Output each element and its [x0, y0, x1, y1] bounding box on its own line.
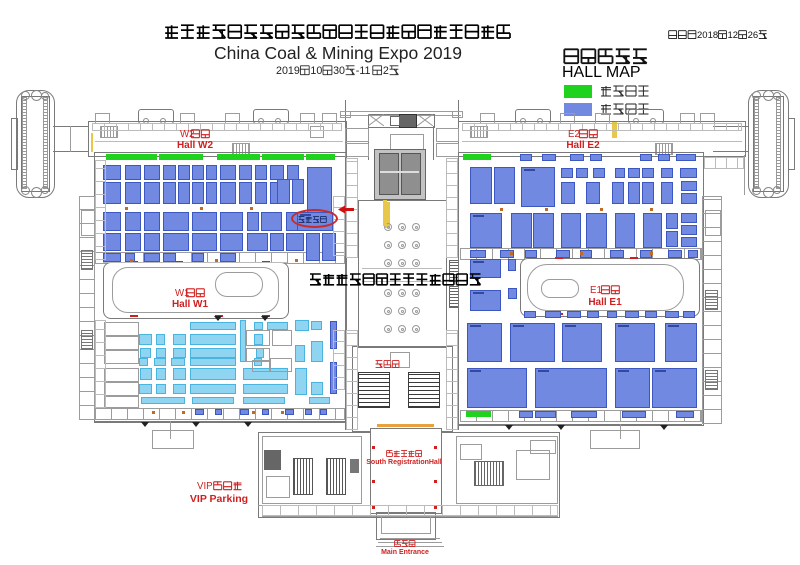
svg-text:10: 10: [311, 65, 323, 77]
svg-text:W2: W2: [180, 129, 195, 140]
svg-text:12: 12: [728, 30, 739, 41]
svg-text:W1: W1: [175, 288, 190, 299]
svg-text:E2: E2: [568, 129, 580, 140]
svg-text:VIP: VIP: [197, 481, 213, 492]
svg-text:-11: -11: [356, 65, 371, 77]
svg-text:30: 30: [333, 65, 345, 77]
svg-text:2018: 2018: [697, 30, 718, 41]
svg-text:26: 26: [748, 30, 759, 41]
svg-text:E1: E1: [590, 285, 602, 296]
svg-text:2019: 2019: [276, 65, 300, 77]
svg-text:2: 2: [383, 65, 389, 77]
